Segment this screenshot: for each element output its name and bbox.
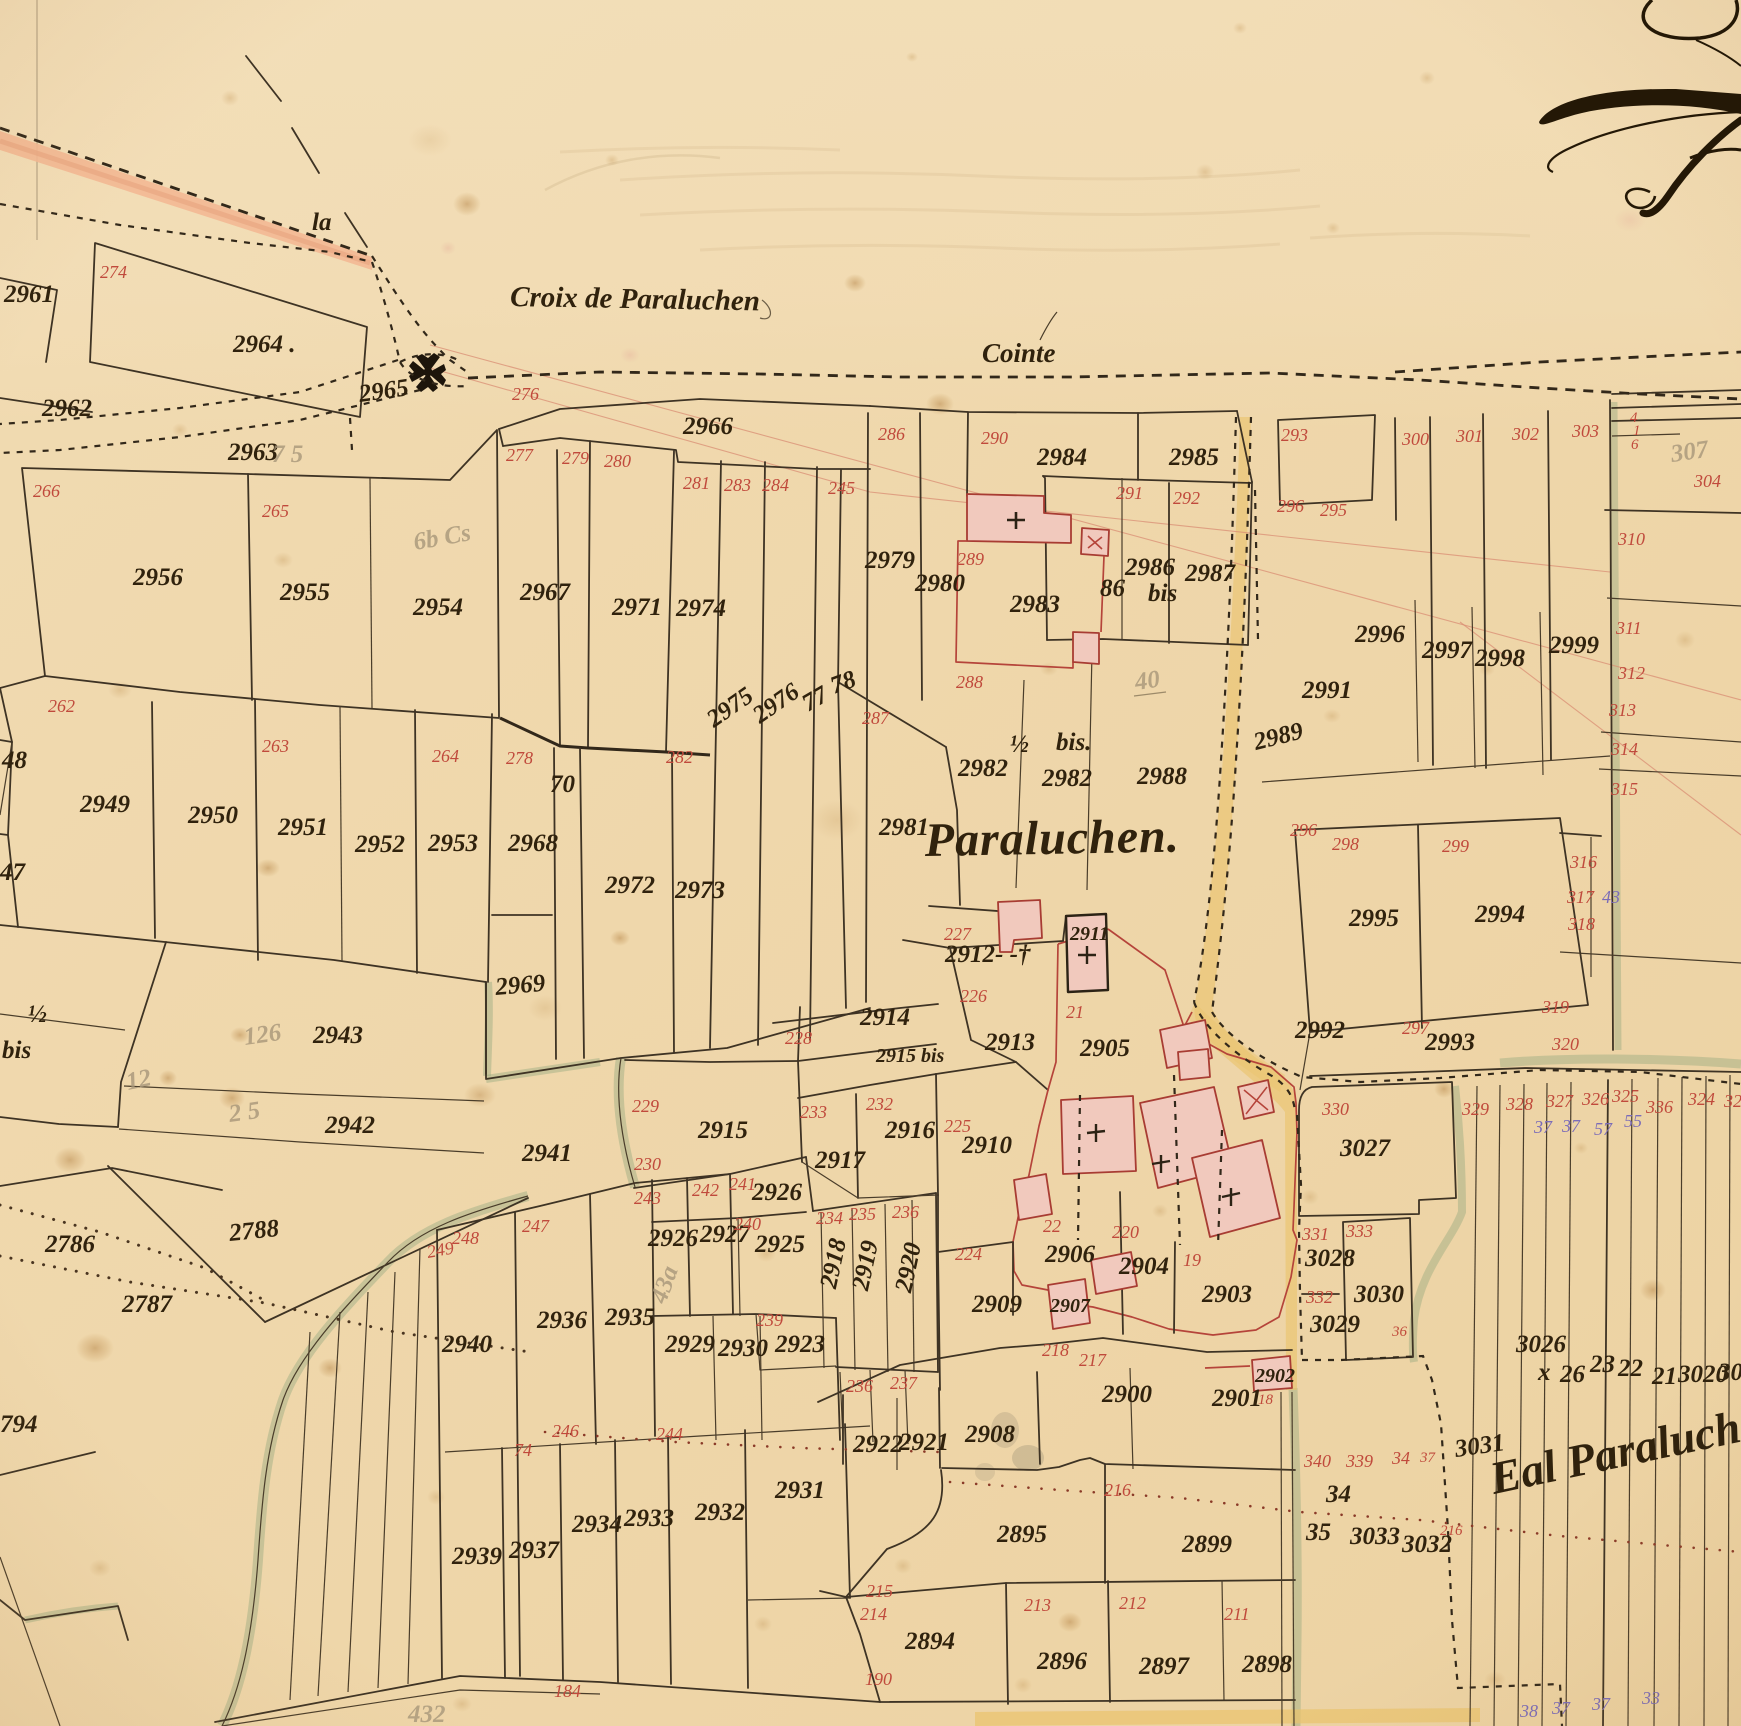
- svg-text:Croix de Paraluchen: Croix de Paraluchen: [510, 281, 760, 317]
- svg-text:Cointe: Cointe: [982, 338, 1056, 368]
- svg-text:Paraluchen.: Paraluchen.: [923, 810, 1180, 867]
